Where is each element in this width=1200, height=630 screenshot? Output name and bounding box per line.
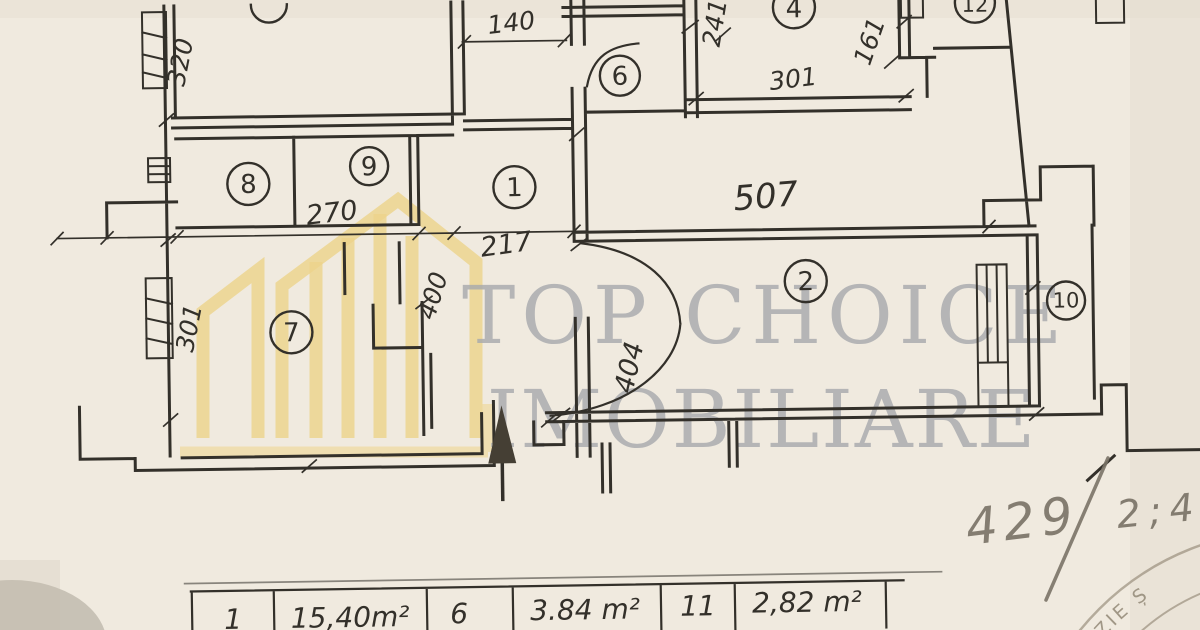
- dim-301-top: 301: [768, 62, 819, 96]
- room-number-7: 7: [283, 318, 300, 348]
- room-number-4: 4: [785, 0, 802, 24]
- dim-270: 270: [304, 195, 359, 232]
- room-number-12: 12: [961, 0, 988, 17]
- table-cell: 15,40m²: [291, 600, 410, 630]
- room-number-1: 1: [506, 173, 523, 203]
- scanned-floor-plan-page: TOP CHOICE IMOBILIARE 1 2 4 6 7 8: [0, 0, 1200, 630]
- floor-plan-canvas: TOP CHOICE IMOBILIARE 1 2 4 6 7 8: [0, 0, 1200, 630]
- table-cell: 3.84 m²: [530, 592, 640, 627]
- room-number-6: 6: [611, 62, 628, 92]
- room-number-8: 8: [240, 170, 257, 200]
- table-cell: 11: [680, 589, 716, 623]
- room-number-10: 10: [1053, 288, 1080, 312]
- dim-507: 507: [732, 174, 800, 219]
- dim-140: 140: [486, 6, 537, 40]
- room-number-9: 9: [361, 152, 378, 182]
- table-cell: 1: [224, 603, 242, 630]
- table-cell: 2,82 m²: [752, 585, 862, 620]
- table-cell: 6: [450, 597, 468, 630]
- room-number-2: 2: [797, 267, 814, 297]
